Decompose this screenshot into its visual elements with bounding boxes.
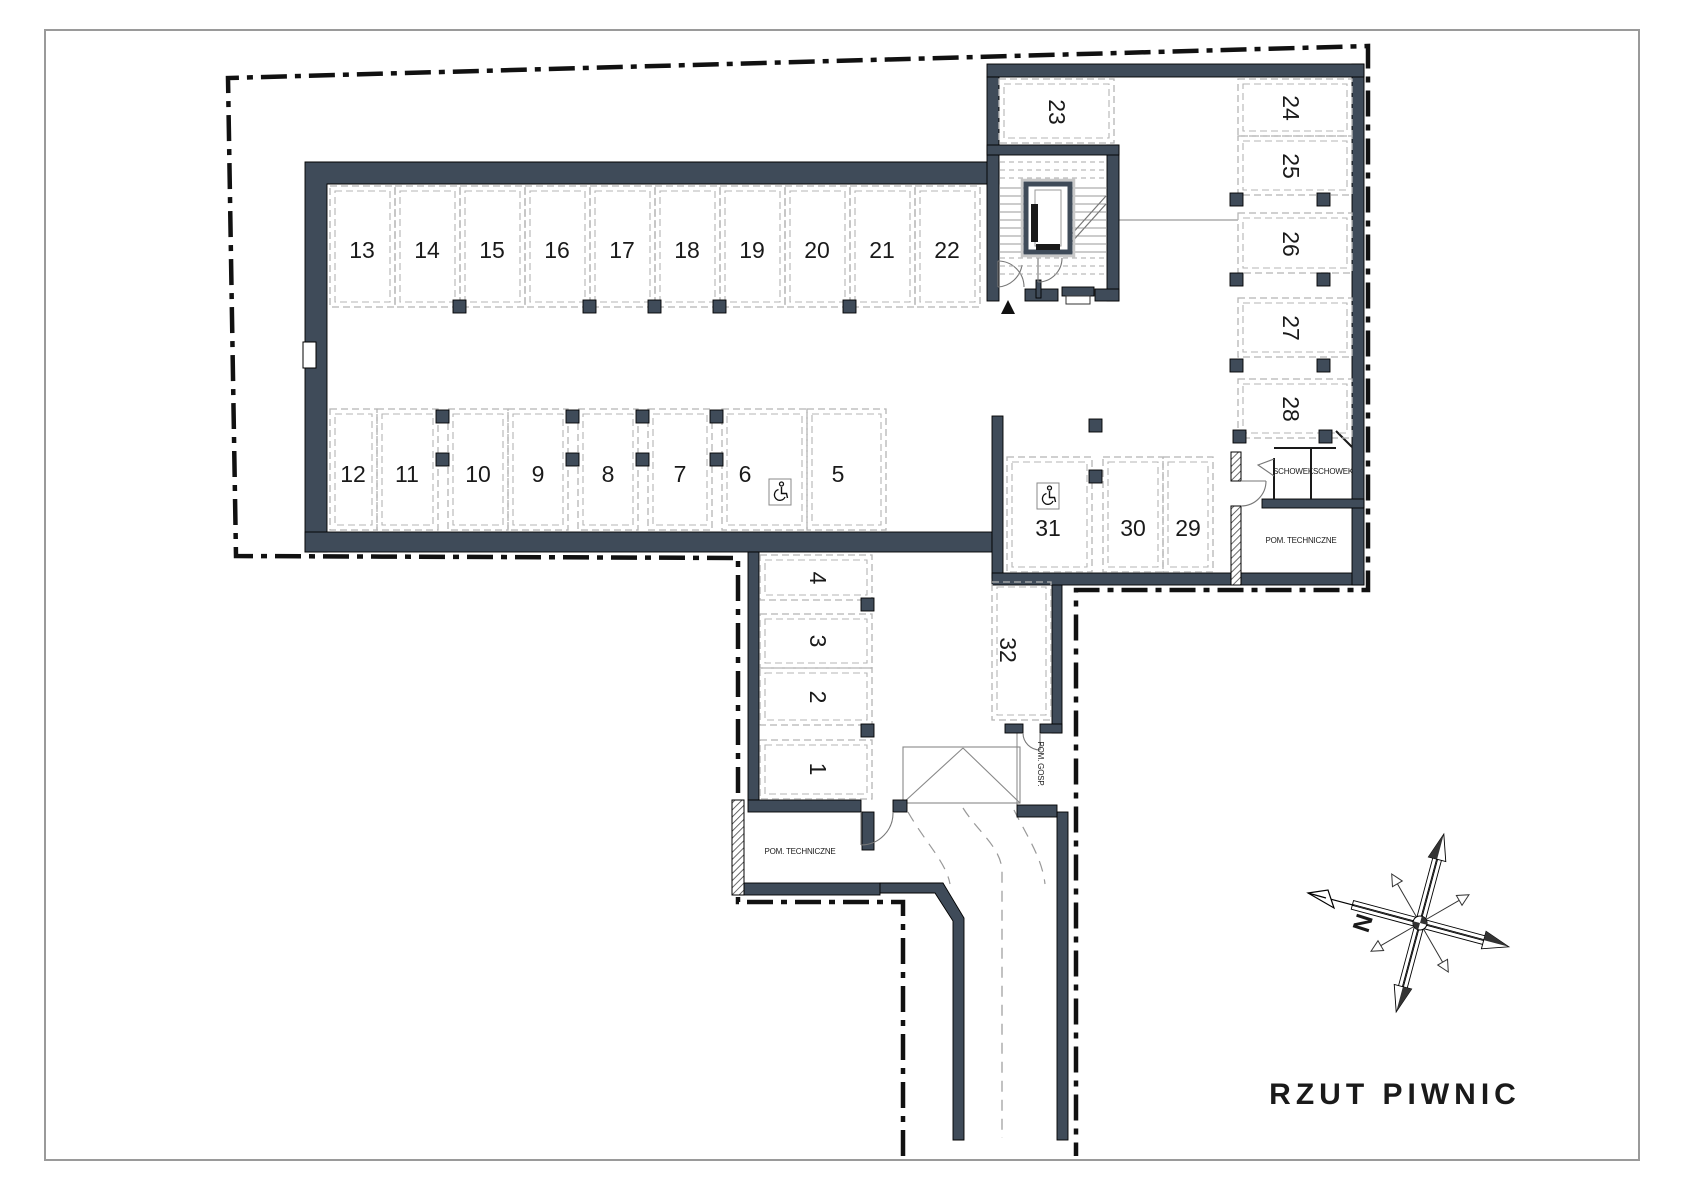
space-number-5: 5 xyxy=(832,461,845,487)
wall-side-column xyxy=(748,552,759,800)
space-number-1: 1 xyxy=(805,763,831,776)
space-number-6: 6 xyxy=(739,461,752,487)
space-number-15: 15 xyxy=(479,237,505,263)
space-number-11: 11 xyxy=(395,461,419,487)
wall-stairwell-right xyxy=(1107,145,1119,301)
structural-column xyxy=(453,300,466,313)
wall-below-space1 xyxy=(748,800,861,812)
space-number-3: 3 xyxy=(805,635,831,648)
structural-column xyxy=(1230,273,1243,286)
elevator-machinery xyxy=(1031,204,1038,242)
structural-column xyxy=(1230,193,1243,206)
space-number-8: 8 xyxy=(602,461,615,487)
space-number-9: 9 xyxy=(532,461,545,487)
space-number-31: 31 xyxy=(1035,515,1061,541)
structural-column xyxy=(1233,430,1246,443)
space-number-16: 16 xyxy=(544,237,570,263)
structural-column xyxy=(583,300,596,313)
structural-column xyxy=(636,453,649,466)
floor-plan-drawing: 1234567891011121314151617181920212223242… xyxy=(0,0,1684,1191)
space-number-24: 24 xyxy=(1278,95,1304,121)
structural-column xyxy=(843,300,856,313)
space-number-29: 29 xyxy=(1175,515,1201,541)
space-number-21: 21 xyxy=(869,237,895,263)
structural-column xyxy=(1317,359,1330,372)
space-number-25: 25 xyxy=(1278,153,1304,179)
structural-column xyxy=(636,410,649,423)
left-wall-opening xyxy=(303,342,316,368)
structural-column xyxy=(566,453,579,466)
space-number-10: 10 xyxy=(465,461,491,487)
structural-column xyxy=(1319,430,1332,443)
structural-column xyxy=(1089,470,1102,483)
drawing-title: RZUT PIWNIC xyxy=(1269,1078,1521,1111)
wall-main-bottom xyxy=(305,532,992,552)
structural-column xyxy=(861,724,874,737)
doormat xyxy=(1066,296,1090,304)
space-number-28: 28 xyxy=(1278,396,1304,422)
structural-column xyxy=(710,453,723,466)
structural-column xyxy=(436,410,449,423)
wall-pomtech-bottom xyxy=(732,883,880,895)
space-number-18: 18 xyxy=(674,237,700,263)
structural-column xyxy=(1317,273,1330,286)
wall-pomgosp-bottom xyxy=(1017,805,1057,817)
wall-block31-left xyxy=(992,416,1003,578)
structural-column xyxy=(713,300,726,313)
wall-right-of-32 xyxy=(1052,578,1062,733)
space-number-27: 27 xyxy=(1278,315,1304,341)
space-number-22: 22 xyxy=(934,237,960,263)
structural-column xyxy=(1089,419,1102,432)
space-number-14: 14 xyxy=(414,237,440,263)
structural-column xyxy=(566,410,579,423)
space-number-7: 7 xyxy=(674,461,687,487)
structural-column xyxy=(648,300,661,313)
structural-column xyxy=(710,410,723,423)
room-label-pom-gosp: POM. GOSP. xyxy=(1036,742,1045,787)
room-label-pom-tech-left: POM. TECHNICZNE xyxy=(764,847,835,856)
structural-column xyxy=(861,598,874,611)
space-number-4: 4 xyxy=(805,572,831,585)
space-number-23: 23 xyxy=(1044,99,1070,125)
room-label-pom-tech-right: POM. TECHNICZNE xyxy=(1265,536,1336,545)
space-number-17: 17 xyxy=(609,237,635,263)
space-number-19: 19 xyxy=(739,237,765,263)
room-label-schowek-1: SCHOWEK xyxy=(1273,467,1314,476)
room-label-schowek-2: SCHOWEK xyxy=(1313,467,1354,476)
space-number-26: 26 xyxy=(1278,231,1304,257)
wall-stairwell-left xyxy=(987,77,999,301)
space-number-13: 13 xyxy=(349,237,375,263)
space-number-2: 2 xyxy=(805,691,831,704)
structural-column xyxy=(436,453,449,466)
space-number-20: 20 xyxy=(804,237,830,263)
wall-right-block-bottom xyxy=(992,573,1364,585)
space-number-12: 12 xyxy=(340,461,366,487)
space-number-32: 32 xyxy=(995,637,1021,663)
doormat-dark xyxy=(1062,287,1094,296)
wall-stairwell-top xyxy=(987,145,1119,155)
wall-below-schowek xyxy=(1262,499,1364,508)
wall-top-outer xyxy=(987,64,1364,77)
wall-driveway-right xyxy=(1057,812,1068,1140)
floor-plan-page: 1234567891011121314151617181920212223242… xyxy=(0,0,1684,1191)
structural-column xyxy=(1230,359,1243,372)
space-number-30: 30 xyxy=(1120,515,1146,541)
structural-column xyxy=(1317,193,1330,206)
elevator xyxy=(1022,180,1074,256)
